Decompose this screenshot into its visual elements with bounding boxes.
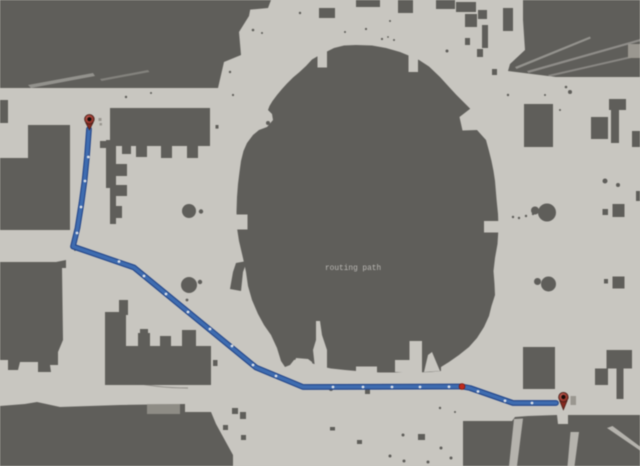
svg-text:routing path: routing path [325,265,381,273]
